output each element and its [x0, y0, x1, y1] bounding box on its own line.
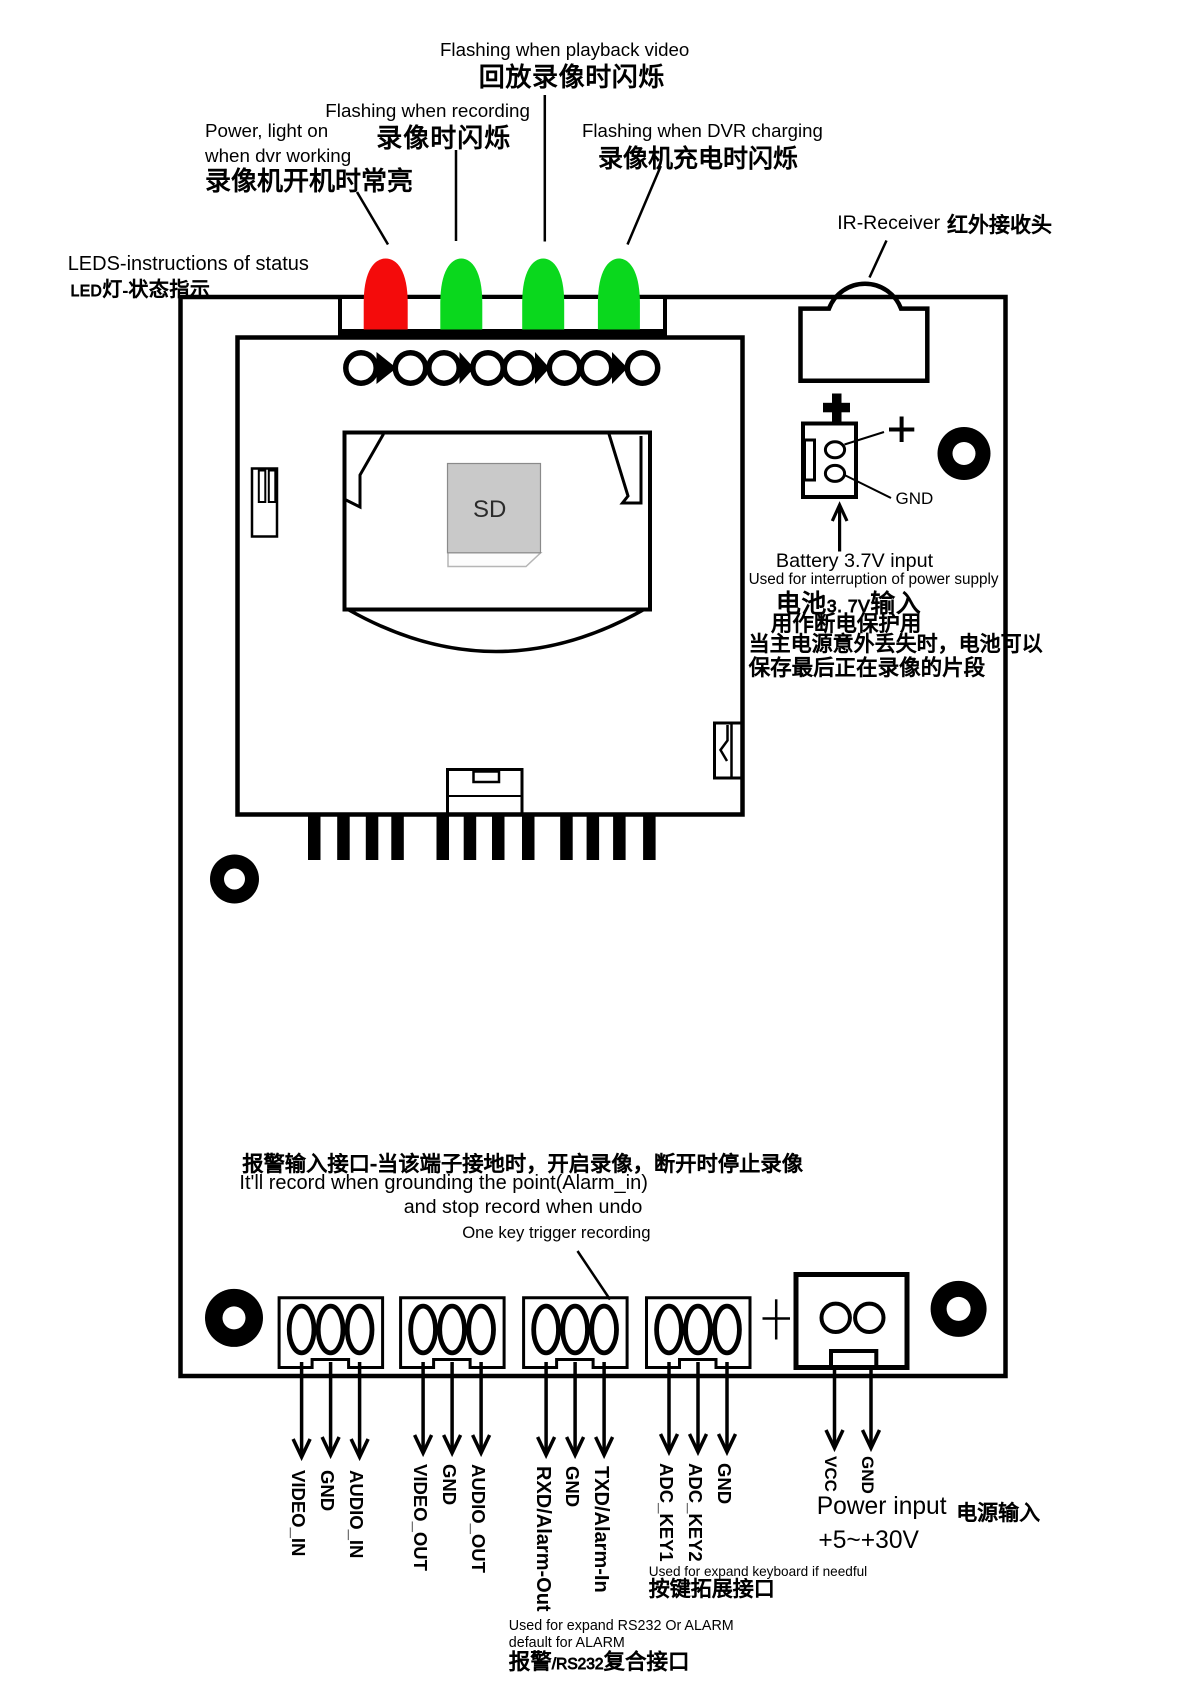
svg-text:SD: SD — [473, 496, 506, 523]
